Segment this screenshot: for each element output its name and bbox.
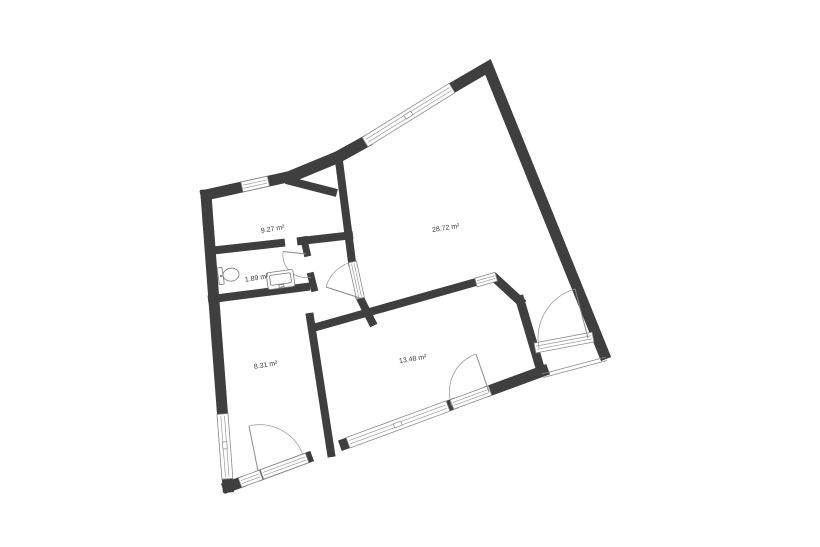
wall-under-room1-a bbox=[209, 243, 281, 251]
threshold-hall-living-door bbox=[349, 261, 365, 299]
wall-bottom-seg-right bbox=[490, 371, 543, 391]
wall-top-bend bbox=[292, 142, 365, 176]
windows bbox=[217, 83, 455, 487]
room-area-label: 13.48 m² bbox=[399, 354, 428, 365]
threshold-room3-balcony-door bbox=[260, 453, 309, 479]
wall-bottom-seg-corner bbox=[228, 483, 240, 487]
wall-bath-south bbox=[212, 287, 306, 299]
wall-hall-east-upper bbox=[339, 161, 352, 262]
floor-plan: 9.27 m² 28.72 m² 1.89 m² 8.31 m² 13.48 m… bbox=[0, 0, 820, 547]
wall-bottom-seg-mid bbox=[345, 443, 348, 444]
sink-icon bbox=[266, 269, 295, 290]
floor-plan-page: 9.27 m² 28.72 m² 1.89 m² 8.31 m² 13.48 m… bbox=[0, 0, 820, 547]
wall-room4-top bbox=[313, 282, 476, 328]
room-area-label: 9.27 m² bbox=[260, 224, 285, 235]
balcony-railing bbox=[542, 357, 607, 378]
toilet-icon bbox=[217, 265, 240, 285]
threshold-living-room4-opening bbox=[475, 272, 498, 286]
interior-walls bbox=[209, 161, 541, 453]
wall-under-room1-b bbox=[301, 236, 349, 242]
window-living-top bbox=[362, 83, 455, 146]
room-area-label: 8.31 m² bbox=[253, 360, 278, 371]
window-room1-top bbox=[241, 176, 270, 192]
window-room3-left bbox=[217, 414, 233, 480]
wall-stub-hall-top bbox=[290, 181, 333, 192]
window-room3-bottom bbox=[238, 470, 262, 487]
room-area-label: 28.72 m² bbox=[432, 223, 461, 234]
wall-bath-east-upper bbox=[304, 240, 307, 253]
wall-bath-east-lower bbox=[311, 276, 314, 288]
threshold-room4-balcony-door bbox=[450, 386, 491, 409]
threshold-living-balcony-door bbox=[534, 332, 594, 353]
room-area-label: 1.89 m² bbox=[244, 273, 269, 284]
window-room4-bottom bbox=[346, 401, 450, 448]
wall-room3-east bbox=[310, 317, 331, 453]
